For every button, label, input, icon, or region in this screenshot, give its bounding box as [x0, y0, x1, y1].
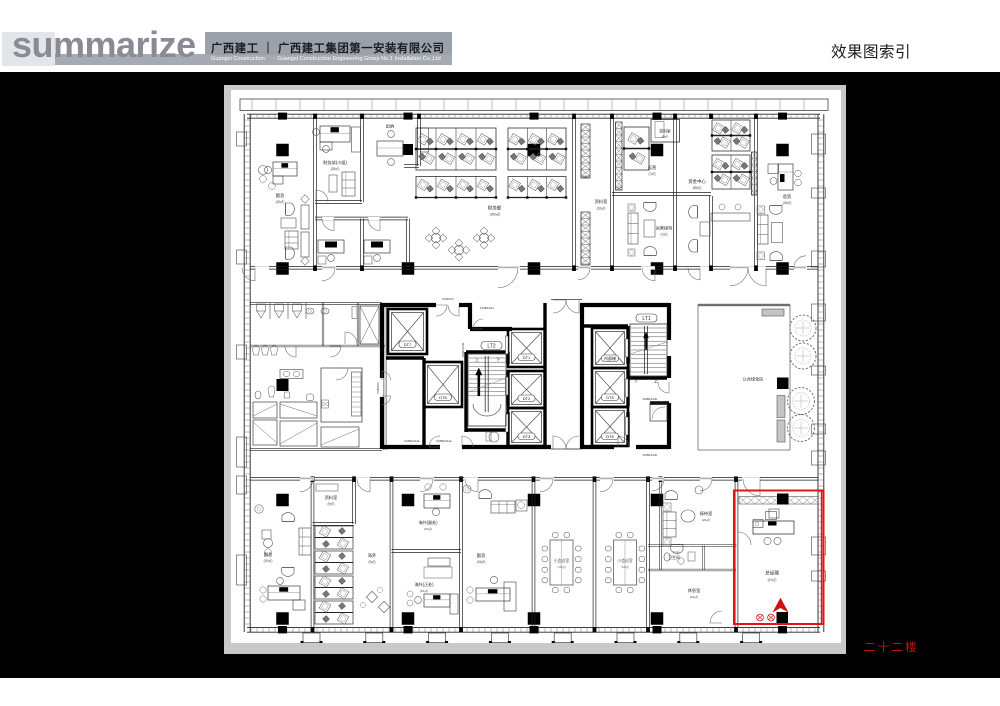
svg-text:财务部(小姐): 财务部(小姐): [323, 159, 347, 166]
svg-text:(7㎡): (7㎡): [648, 171, 655, 176]
svg-text:资料室: 资料室: [595, 198, 608, 205]
svg-text:FM1524: FM1524: [376, 382, 380, 394]
svg-text:海外: 海外: [368, 552, 377, 559]
svg-text:DT7: DT7: [404, 342, 412, 347]
svg-text:4.7㎡: 4.7㎡: [673, 550, 680, 554]
svg-text:(7㎡): (7㎡): [660, 232, 667, 237]
svg-text:运营: 运营: [648, 164, 656, 171]
svg-text:(16㎡): (16㎡): [477, 559, 486, 564]
svg-text:财务部: 财务部: [488, 205, 502, 212]
svg-text:(15㎡): (15㎡): [690, 594, 698, 599]
svg-text:(15㎡): (15㎡): [420, 588, 428, 593]
svg-text:休息室: 休息室: [688, 587, 701, 594]
svg-text:海外(副处): 海外(副处): [418, 519, 438, 525]
svg-text:总监: 总监: [783, 193, 792, 199]
svg-text:FMB1224: FMB1224: [480, 306, 494, 310]
svg-text:(28㎡): (28㎡): [331, 166, 340, 171]
svg-text:公共绿化区: 公共绿化区: [743, 376, 764, 383]
svg-text:FMB1024a: FMB1024a: [436, 439, 451, 443]
svg-text:DT8: DT8: [439, 395, 447, 400]
svg-text:DT2: DT2: [523, 396, 531, 401]
svg-text:DT6: DT6: [606, 434, 614, 439]
svg-text:(32㎡): (32㎡): [597, 206, 606, 211]
svg-text:小会议室: 小会议室: [554, 558, 570, 563]
svg-text:DT5: DT5: [606, 395, 614, 400]
svg-text:(18㎡): (18㎡): [621, 564, 629, 569]
svg-text:FMB1024b: FMB1024b: [404, 439, 419, 443]
svg-text:(20㎡): (20㎡): [276, 199, 285, 204]
svg-text:(20㎡): (20㎡): [264, 558, 273, 563]
svg-text:DT1: DT1: [523, 355, 531, 360]
svg-text:资料室: 资料室: [659, 129, 671, 134]
svg-text:运营接待: 运营接待: [656, 225, 674, 232]
svg-text:FMB1224b: FMB1224b: [643, 453, 658, 457]
svg-text:FMB1224b: FMB1224b: [643, 397, 658, 401]
svg-text:(15㎡): (15㎡): [424, 526, 432, 531]
svg-text:下: 下: [496, 357, 500, 362]
svg-text:LT2: LT2: [487, 344, 495, 350]
svg-text:(8㎡): (8㎡): [662, 134, 669, 139]
svg-text:副总: 副总: [276, 192, 285, 199]
svg-text:(85㎡): (85㎡): [693, 185, 702, 190]
svg-text:卫生间: 卫生间: [668, 555, 680, 560]
svg-text:下: 下: [634, 379, 639, 385]
svg-text:内部梯: 内部梯: [604, 355, 616, 361]
svg-text:FM1524: FM1524: [442, 297, 454, 301]
svg-text:资料室: 资料室: [325, 494, 338, 501]
svg-text:DT3: DT3: [523, 434, 531, 439]
svg-text:(18㎡): (18㎡): [557, 564, 565, 569]
svg-text:FMB1324b: FMB1324b: [461, 342, 465, 357]
svg-text:上: 上: [475, 356, 479, 362]
svg-text:(9㎡): (9㎡): [327, 501, 334, 506]
svg-text:副总: 副总: [264, 551, 273, 558]
svg-text:(9㎡): (9㎡): [368, 559, 375, 564]
svg-text:海外(正处): 海外(正处): [414, 581, 434, 587]
svg-text:(260㎡): (260㎡): [490, 212, 501, 217]
svg-text:总经理: 总经理: [765, 570, 779, 576]
svg-text:资金中心: 资金中心: [688, 178, 706, 185]
svg-text:小会议室: 小会议室: [617, 558, 633, 563]
svg-text:(20㎡): (20㎡): [702, 517, 710, 522]
svg-text:(42㎡): (42㎡): [768, 577, 777, 582]
svg-text:接待室: 接待室: [700, 510, 713, 517]
svg-text:出纳: 出纳: [386, 123, 394, 130]
svg-text:LT1: LT1: [642, 316, 650, 322]
svg-text:副总: 副总: [477, 552, 486, 559]
svg-text:(26㎡): (26㎡): [783, 200, 792, 205]
